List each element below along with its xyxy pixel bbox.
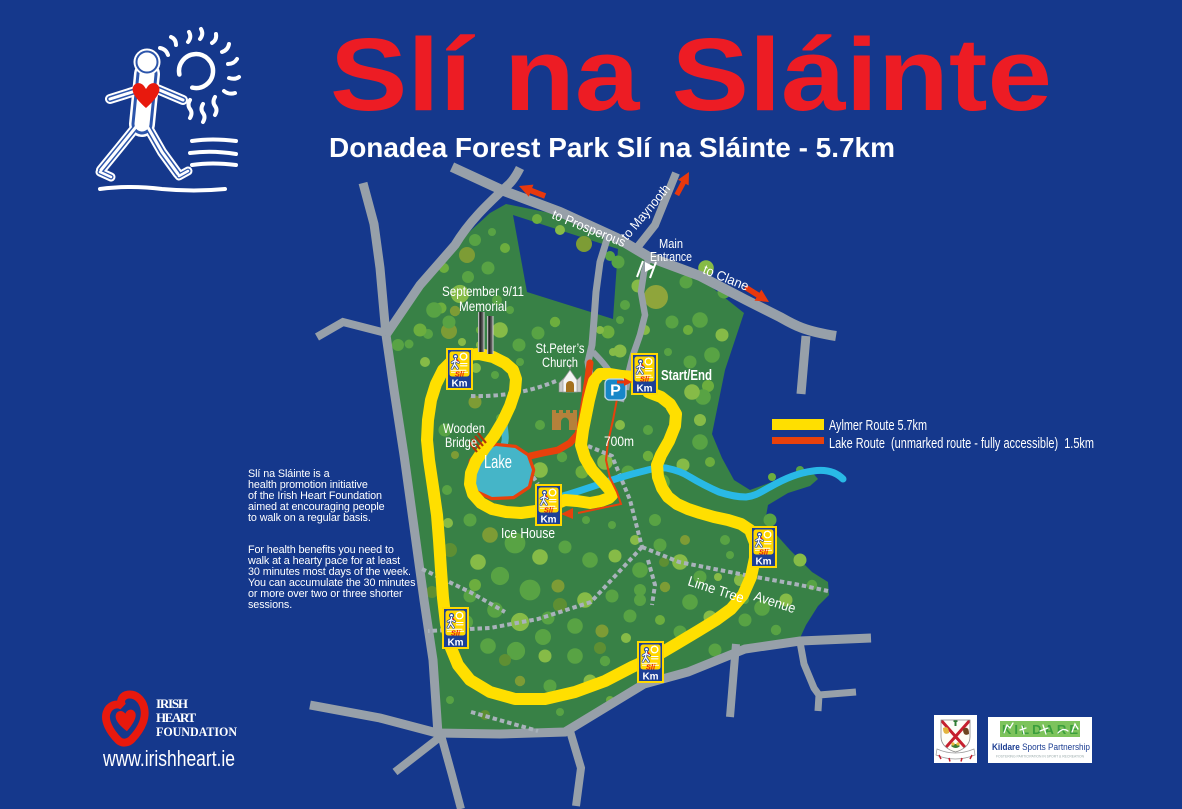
svg-text:Entrance: Entrance [650,249,692,264]
svg-text:Memorial: Memorial [459,298,507,314]
svg-text:September 9/11: September 9/11 [442,283,524,299]
svg-text:Bridge: Bridge [445,434,477,450]
svg-text:Donadea Forest Park Slí na Slá: Donadea Forest Park Slí na Sláinte - 5.7… [329,132,895,163]
svg-text:Kildare Sports Partnership: Kildare Sports Partnership [992,742,1090,752]
svg-text:Ice House: Ice House [501,525,555,542]
svg-text:700m: 700m [604,433,634,449]
svg-text:HEART: HEART [156,710,196,725]
svg-text:Slí na Sláinte: Slí na Sláinte [330,17,1052,132]
svg-text:www.irishheart.ie: www.irishheart.ie [102,746,235,771]
svg-text:Church: Church [542,354,578,370]
svg-text:FOSTERING PARTICIPATION IN SPO: FOSTERING PARTICIPATION IN SPORT & RECRE… [996,754,1084,759]
svg-text:P: P [610,383,621,400]
svg-text:Aylmer Route 5.7km: Aylmer Route 5.7km [829,417,927,434]
svg-text:Lake: Lake [484,452,512,472]
svg-text:FOUNDATION: FOUNDATION [156,724,238,739]
svg-text:sessions.: sessions. [248,599,292,611]
svg-text:to walk on a regular basis.: to walk on a regular basis. [248,512,371,524]
svg-text:Start/End: Start/End [661,367,712,384]
svg-text:IRISH: IRISH [156,696,188,711]
svg-text:Lake Route (unmarked route -: Lake Route (unmarked route - fully acces… [829,435,1094,452]
